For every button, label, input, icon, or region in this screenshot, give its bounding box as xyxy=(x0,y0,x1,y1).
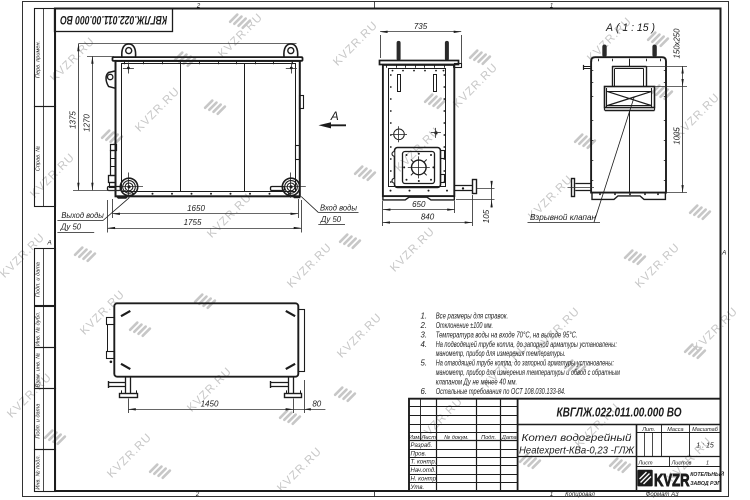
svg-text:1650: 1650 xyxy=(187,204,205,213)
svg-text:1: 1 xyxy=(550,3,553,9)
svg-text:Нач.отд.: Нач.отд. xyxy=(411,468,436,474)
svg-text:клапаном Ду не менее 40 мм.: клапаном Ду не менее 40 мм. xyxy=(436,377,518,386)
svg-text:Инв. № дубл.: Инв. № дубл. xyxy=(35,312,41,346)
svg-text:1.: 1. xyxy=(420,312,427,321)
svg-text:КОТЕЛЬНЫЙ: КОТЕЛЬНЫЙ xyxy=(690,470,724,478)
svg-text:Взам. инв. №: Взам. инв. № xyxy=(35,353,41,388)
svg-text:Лит.: Лит. xyxy=(641,427,655,433)
svg-text:Температура воды на входе 70°С: Температура воды на входе 70°С, на выход… xyxy=(436,330,578,339)
svg-text:На отводящей трубе котла, до з: На отводящей трубе котла, до запорной ар… xyxy=(436,359,614,368)
svg-text:1: 1 xyxy=(706,460,709,466)
svg-text:6.: 6. xyxy=(420,387,427,396)
svg-text:А ( 1 : 15 ): А ( 1 : 15 ) xyxy=(605,22,655,34)
svg-text:840: 840 xyxy=(421,213,435,222)
svg-text:KVZR: KVZR xyxy=(654,470,690,490)
svg-text:80: 80 xyxy=(312,399,321,408)
svg-text:Утв.: Утв. xyxy=(410,485,425,491)
svg-text:Все размеры для справок.: Все размеры для справок. xyxy=(436,312,509,321)
svg-text:5.: 5. xyxy=(420,359,427,368)
svg-text:Heatexpert-КВа-0,23 -ГЛЖ: Heatexpert-КВа-0,23 -ГЛЖ xyxy=(519,446,635,457)
svg-text:735: 735 xyxy=(414,22,428,31)
svg-text:Копировал: Копировал xyxy=(565,492,595,498)
svg-text:Выход воды: Выход воды xyxy=(61,211,104,220)
svg-text:А: А xyxy=(721,250,726,257)
svg-text:1 : 15: 1 : 15 xyxy=(696,443,714,450)
svg-text:2.: 2. xyxy=(419,321,427,330)
svg-text:Лист: Лист xyxy=(637,460,653,466)
svg-text:Формат А3: Формат А3 xyxy=(646,492,679,498)
svg-text:Взрывной клапан: Взрывной клапан xyxy=(530,213,597,222)
svg-text:Разраб.: Разраб. xyxy=(411,443,433,449)
svg-text:1755: 1755 xyxy=(184,218,202,227)
svg-text:Справ. №: Справ. № xyxy=(35,146,41,171)
svg-text:№ докум.: № докум. xyxy=(444,435,469,441)
svg-text:Подп.: Подп. xyxy=(481,435,496,441)
svg-text:КВГЛЖ.022.011.00.000 ВО: КВГЛЖ.022.011.00.000 ВО xyxy=(557,406,682,420)
svg-text:Пров.: Пров. xyxy=(411,451,427,457)
svg-text:Н. контр.: Н. контр. xyxy=(411,476,438,482)
svg-text:Масштаб: Масштаб xyxy=(692,427,719,433)
svg-text:На подводящей трубе котла, до: На подводящей трубе котла, до запорной а… xyxy=(436,340,617,349)
svg-text:150х250: 150х250 xyxy=(673,28,682,59)
svg-text:Ду 50: Ду 50 xyxy=(320,215,342,224)
svg-text:1: 1 xyxy=(550,492,553,498)
svg-text:4.: 4. xyxy=(420,340,427,349)
svg-text:2: 2 xyxy=(195,492,200,498)
svg-text:А: А xyxy=(46,240,51,247)
svg-text:Масса: Масса xyxy=(667,427,683,433)
svg-text:ЗАВОД РЭП: ЗАВОД РЭП xyxy=(690,481,721,487)
svg-text:650: 650 xyxy=(412,200,426,209)
svg-text:Котел водогрейный: Котел водогрейный xyxy=(522,432,632,444)
svg-text:манометр, прибор для измерения: манометр, прибор для измерения температу… xyxy=(436,368,621,377)
svg-text:Вход воды: Вход воды xyxy=(320,203,357,212)
svg-text:Листов: Листов xyxy=(670,460,691,466)
svg-text:Изм.: Изм. xyxy=(409,435,421,441)
svg-text:Инв. № подл.: Инв. № подл. xyxy=(35,455,41,490)
svg-text:1005: 1005 xyxy=(673,127,682,145)
svg-text:2: 2 xyxy=(196,3,201,9)
svg-text:3.: 3. xyxy=(420,330,427,339)
svg-text:Подп. и дата: Подп. и дата xyxy=(35,404,41,439)
svg-text:А: А xyxy=(330,109,339,123)
svg-text:КВГЛЖ.022.011.00.000 ВО: КВГЛЖ.022.011.00.000 ВО xyxy=(60,13,167,27)
svg-text:Ду 50: Ду 50 xyxy=(60,222,82,231)
svg-text:Отклонение ±100 мм.: Отклонение ±100 мм. xyxy=(436,321,493,330)
svg-text:1375: 1375 xyxy=(69,111,78,129)
svg-text:Т. контр.: Т. контр. xyxy=(411,460,437,466)
svg-text:1450: 1450 xyxy=(201,399,219,408)
svg-text:Перв. примен.: Перв. примен. xyxy=(35,41,41,78)
svg-text:Дата: Дата xyxy=(501,435,517,441)
svg-text:1270: 1270 xyxy=(83,114,92,132)
svg-text:105: 105 xyxy=(482,209,491,223)
svg-text:Лист: Лист xyxy=(420,435,436,441)
svg-text:Подп. и дата: Подп. и дата xyxy=(35,262,41,297)
svg-text:Остальные требования по ОСТ 10: Остальные требования по ОСТ 108.030.133-… xyxy=(436,387,566,396)
svg-text:манометр, прибор для измерения: манометр, прибор для измерения температу… xyxy=(436,349,566,358)
